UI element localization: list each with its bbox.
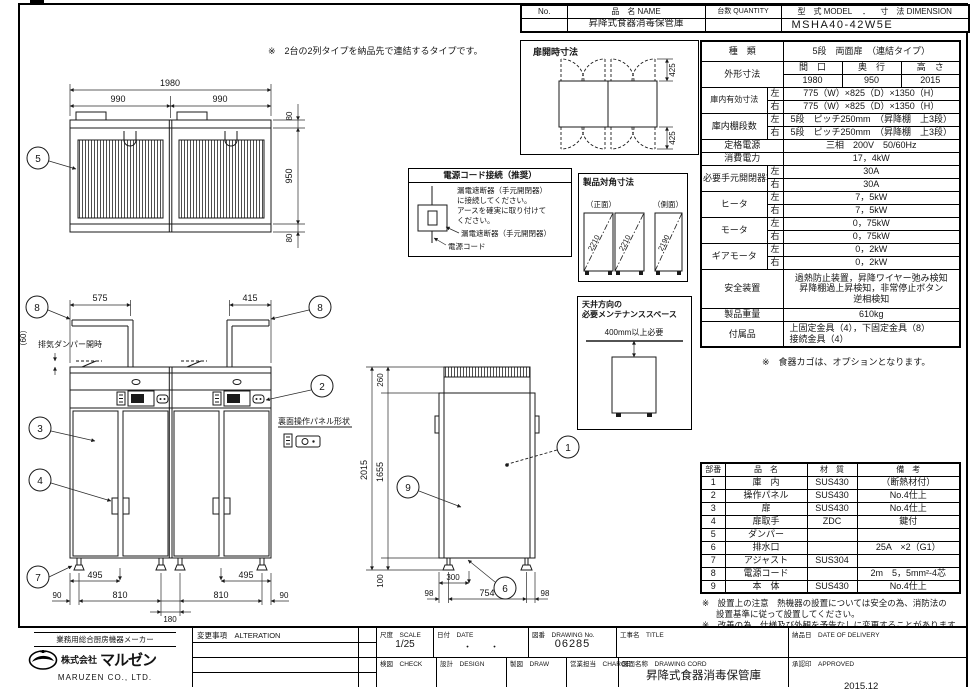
title-block: 業務用総合厨房機器メーカー 株式会社 マルゼン MARUZEN CO., LTD… [18, 626, 966, 687]
door-open-box: 扉開時寸法 425 425 [520, 40, 699, 155]
door-handle [112, 498, 118, 514]
clearance-label: 400mm以上必要 [605, 327, 664, 337]
scale-cell: 尺度 SCALE 1/25 [376, 628, 433, 657]
dim-260: 260 [376, 373, 385, 387]
balloon-4-number: 4 [37, 476, 43, 487]
balloon-9-number: 9 [405, 483, 411, 494]
dim-950: 950 [284, 168, 294, 183]
diag-2210-a: 2210 [586, 233, 602, 252]
dim-990-left: 990 [110, 94, 125, 104]
diagonal-drawing: （正面） （側面） 2210 2210 2190 [579, 174, 687, 281]
adjustable-feet [74, 558, 267, 570]
alteration-cell: 変更事項 ALTERATION [192, 628, 376, 687]
company-name: マルゼン [100, 649, 156, 670]
door-handle [123, 498, 129, 514]
design-cell: 設計 DESIGN [436, 657, 506, 687]
front-view: 575 415 （60） 排気ダンパー開時 [19, 293, 333, 624]
dim-1655: 1655 [375, 462, 385, 482]
draw-cell: 製図 DRAW [506, 657, 566, 687]
alteration-row-line [193, 657, 376, 658]
front-face-label: （正面） [586, 200, 616, 209]
drawing-no-value: 06285 [529, 638, 616, 650]
dim-415: 415 [242, 293, 257, 303]
alteration-label: 変更事項 ALTERATION [197, 630, 280, 641]
balloon-2-number: 2 [319, 382, 325, 393]
breaker-icon [418, 205, 447, 231]
damper-open-note: 排気ダンパー開時 [38, 339, 102, 349]
side-view: 2015 260 1655 100 98 754 98 300 1 [359, 367, 579, 603]
maker-cell: 業務用総合厨房機器メーカー 株式会社 マルゼン MARUZEN CO., LTD… [18, 628, 192, 687]
dim-90-left: 90 [53, 591, 62, 600]
dim-495-left: 495 [87, 570, 102, 580]
project-title-label: 工事名 TITLE [620, 629, 664, 639]
door [174, 411, 219, 556]
project-title-cell: 工事名 TITLE [616, 628, 788, 657]
rear-panel-label: 裏面操作パネル形状 [278, 416, 350, 426]
views-canvas: 1980 990 990 80 950 80 5 [0, 0, 976, 692]
dim-810-right: 810 [213, 590, 228, 600]
balloon-8-left-number: 8 [34, 303, 40, 314]
dim-425-top: 425 [668, 63, 677, 77]
maker-tagline: 業務用総合厨房機器メーカー [34, 632, 176, 647]
door-open-drawing: 425 425 [521, 41, 698, 154]
dim-300: 300 [446, 573, 460, 582]
dim-495-right: 495 [238, 570, 253, 580]
balloon-6-number: 6 [502, 584, 508, 595]
design-label: 設計 DESIGN [440, 658, 484, 668]
control-panel-right [213, 391, 264, 406]
alteration-row-line [193, 672, 376, 673]
door [123, 411, 168, 556]
dim-810-left: 810 [112, 590, 127, 600]
spacer-cell [358, 657, 376, 687]
balloon-3-number: 3 [37, 424, 43, 435]
maker-logo-row: 株式会社 マルゼン [28, 648, 156, 670]
door [224, 411, 269, 556]
top-view: 1980 990 990 80 950 80 5 [27, 78, 305, 248]
side-face-label: （側面） [653, 199, 683, 209]
charge-cell: 営業担当 CHARGE [566, 657, 618, 687]
delivery-label: 納品日 DATE OF DELIVERY [792, 629, 880, 639]
diagonal-box: 製品対角寸法 （正面） （側面） 2210 2210 2190 [578, 173, 688, 282]
door-handle [224, 498, 230, 514]
approved-label: 承認印 APPROVED [792, 658, 854, 668]
scale-label: 尺度 SCALE [380, 629, 421, 639]
control-panel-left [117, 391, 168, 406]
balloon-1-number: 1 [565, 443, 571, 454]
door [73, 411, 118, 556]
power-note-line4: ください。 [457, 215, 495, 226]
side-hinge [535, 416, 539, 433]
dim-425-bottom: 425 [668, 131, 677, 145]
draw-label: 製図 DRAW [510, 658, 549, 668]
drawing-name-cell: 図面名称 DRAWING CORD 昇降式食器消毒保管庫 [618, 657, 788, 687]
breaker-label: 漏電遮断器（手元開閉器） [461, 228, 551, 239]
diag-2210-b: 2210 [617, 233, 633, 252]
scale-value: 1/25 [377, 639, 433, 650]
drawing-no-cell: 図番 DRAWING No. 06285 [528, 628, 616, 657]
dim-180: 180 [163, 615, 177, 624]
check-label: 検図 CHECK [380, 658, 422, 668]
diag-2190: 2190 [656, 233, 671, 252]
power-cord-label: 電源コード [448, 241, 486, 252]
alteration-row-line [193, 642, 376, 643]
dim-80-top: 80 [285, 111, 294, 120]
company-en: MARUZEN CO., LTD. [18, 673, 192, 682]
delivery-cell: 納品日 DATE OF DELIVERY [788, 628, 966, 657]
balloon-5-number: 5 [35, 154, 41, 165]
balloon-8-right-number: 8 [317, 303, 323, 314]
side-hinge [435, 416, 439, 433]
ceiling-drawing: 400mm以上必要 [578, 297, 691, 429]
door-handle [213, 498, 219, 514]
dim-1980: 1980 [160, 78, 180, 88]
dim-60: （60） [19, 326, 28, 351]
company-prefix: 株式会社 [61, 653, 97, 666]
date-stamp: 2015.12 [844, 681, 878, 692]
dim-98-left: 98 [425, 589, 434, 598]
date-label: 日付 DATE [437, 629, 473, 639]
balloon-7-number: 7 [35, 573, 41, 584]
dim-90-right: 90 [280, 591, 289, 600]
check-cell: 検図 CHECK [376, 657, 436, 687]
drawing-name-value: 昇降式食器消毒保管庫 [619, 667, 788, 683]
power-cord-box: 電源コード接続（推奨） 漏電遮断器（手元開閉器） に接続してください。 アースを… [408, 168, 572, 257]
dim-990-right: 990 [212, 94, 227, 104]
drawing-sheet: No. 品 名 NAME 台数 QUANTITY 型 式 MODEL ． 寸 法… [0, 0, 976, 692]
date-cell: 日付 DATE ・ ・ [433, 628, 528, 657]
date-value: ・ ・ [434, 640, 528, 653]
dim-98-right: 98 [541, 589, 550, 598]
dim-754: 754 [479, 588, 494, 598]
dim-575: 575 [92, 293, 107, 303]
rear-panel-note: 裏面操作パネル形状 [278, 416, 352, 447]
maruzen-logo-icon [28, 648, 58, 670]
ceiling-space-box: 天井方向の 必要メンテナンススペース 400mm以上必要 [577, 296, 692, 430]
dim-80-bottom: 80 [285, 233, 294, 242]
dim-100: 100 [376, 574, 385, 588]
dim-2015: 2015 [359, 460, 369, 480]
spacer-cell [358, 628, 376, 657]
